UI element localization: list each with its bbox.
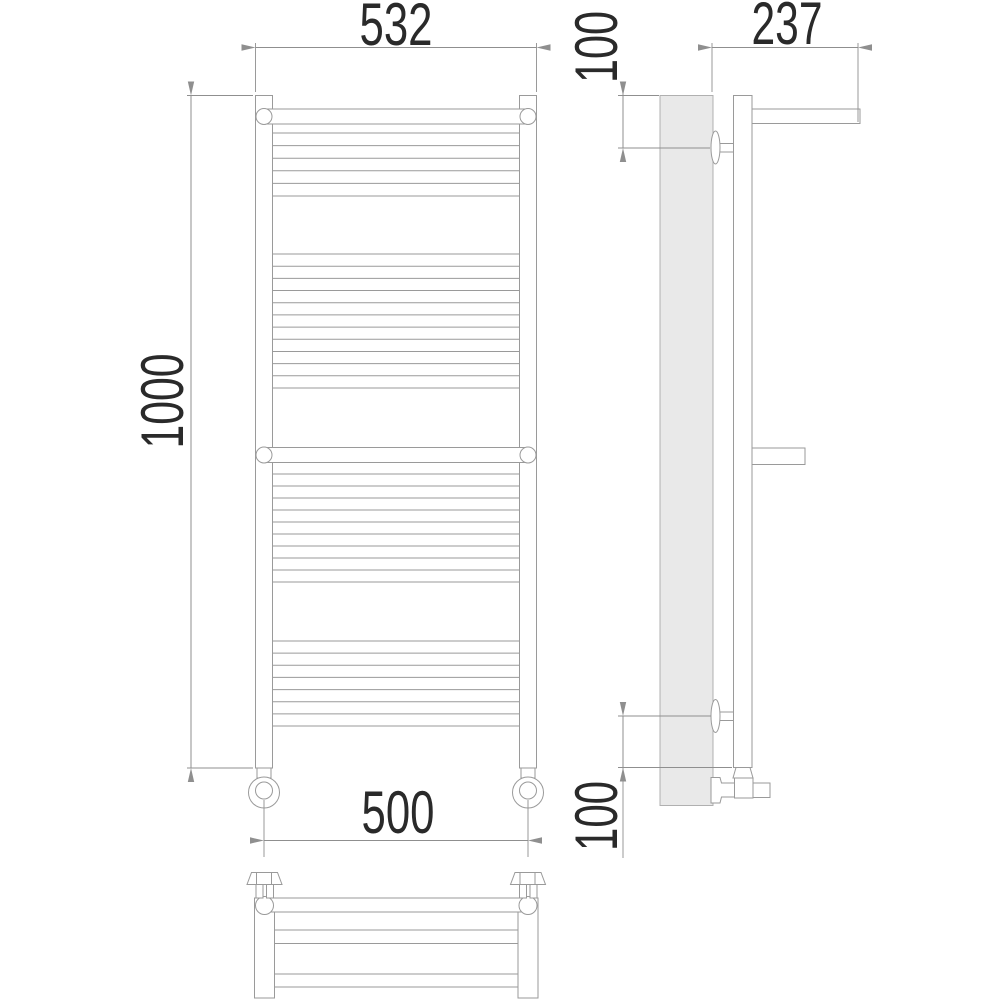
side-shelf-arm xyxy=(752,109,860,124)
front-top-rail xyxy=(264,109,528,124)
corner-ball-top-right xyxy=(520,109,536,125)
bottom-wall-bracket xyxy=(711,700,734,733)
dimension-connection-spacing: 500 xyxy=(264,779,528,857)
corner-ball-top-left xyxy=(256,109,272,125)
wall-panel xyxy=(660,96,713,806)
side-vertical-tube xyxy=(734,96,753,768)
dimension-overall-height: 1000 xyxy=(129,96,253,769)
drawing-canvas: 532 1000 500 237 100 100 xyxy=(0,0,1000,1000)
rung-group-3 xyxy=(273,474,520,582)
plan-view xyxy=(247,873,546,999)
dimension-top-width: 532 xyxy=(256,0,537,92)
corner-ball-mid-left xyxy=(256,447,272,463)
rung-group-4 xyxy=(273,641,520,726)
rung-group-2 xyxy=(273,254,520,388)
technical-drawing: 532 1000 500 237 100 100 xyxy=(0,0,1000,1000)
rung-group-1 xyxy=(273,133,520,196)
plan-left-bracket xyxy=(247,873,282,899)
dim-top-offset-label: 100 xyxy=(563,11,630,83)
dim-connection-spacing-label: 500 xyxy=(362,779,435,846)
dim-top-width-label: 532 xyxy=(360,0,433,58)
plan-right-bracket xyxy=(511,873,546,899)
dim-overall-height-label: 1000 xyxy=(129,354,196,449)
dim-depth-label: 237 xyxy=(752,0,823,57)
front-middle-rail xyxy=(264,448,528,463)
side-bottom-valve xyxy=(711,768,770,804)
plan-rail-1 xyxy=(264,898,528,912)
front-view xyxy=(249,96,544,809)
top-wall-bracket xyxy=(711,131,734,164)
corner-ball-mid-right xyxy=(520,447,536,463)
dim-bottom-offset-label: 100 xyxy=(563,781,630,851)
plan-rail-2 xyxy=(275,930,519,944)
side-view xyxy=(660,96,860,806)
front-right-post xyxy=(520,96,537,769)
side-middle-rail-stub xyxy=(752,448,805,465)
plan-ball-left xyxy=(256,897,274,915)
plan-ball-right xyxy=(519,897,537,915)
plan-rail-3 xyxy=(275,974,519,987)
front-left-post xyxy=(256,96,273,769)
